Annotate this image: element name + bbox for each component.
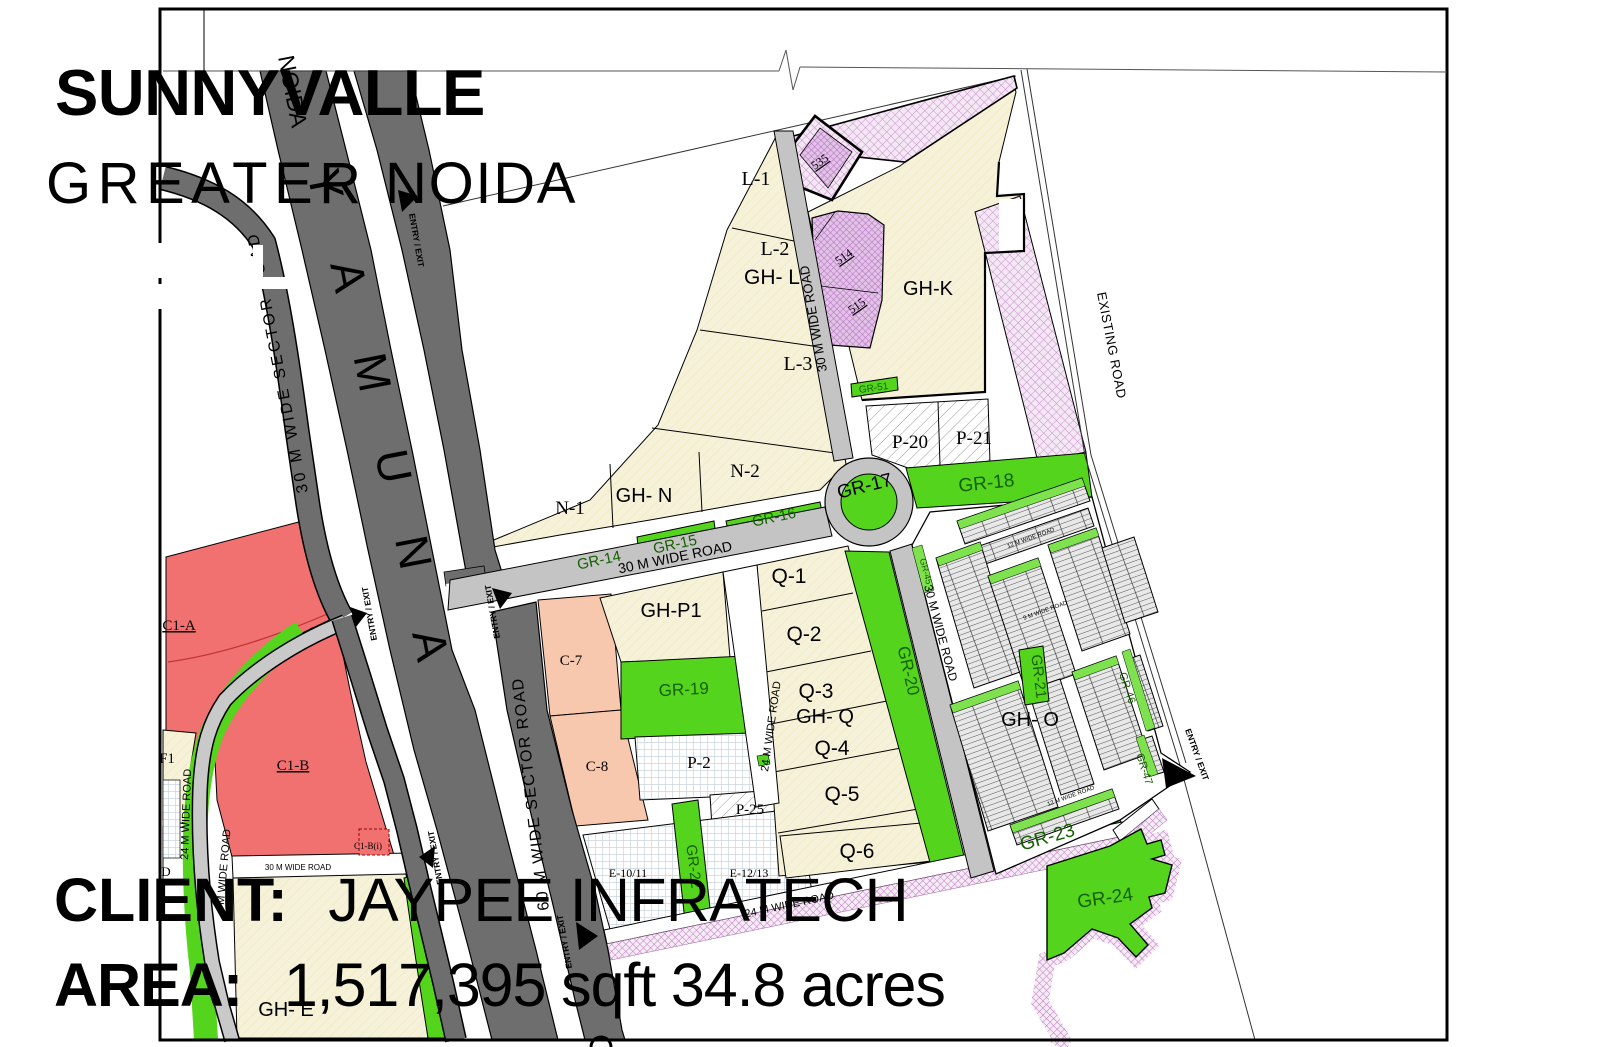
- svg-text:Q-1: Q-1: [771, 565, 806, 588]
- svg-text:GH- L: GH- L: [744, 266, 800, 289]
- svg-text:GREATERNOIDA: GREATERNOIDA: [46, 151, 577, 216]
- svg-text:L-2: L-2: [761, 238, 790, 260]
- svg-text:P-21: P-21: [956, 428, 992, 449]
- svg-text:C1-B: C1-B: [277, 758, 310, 774]
- svg-text:GH- Q: GH- Q: [796, 706, 854, 728]
- svg-text:GH- N: GH- N: [616, 485, 673, 507]
- svg-text:GH-K: GH-K: [903, 278, 954, 300]
- svg-text:P-2: P-2: [687, 753, 711, 772]
- svg-text:GH- O: GH- O: [1001, 709, 1059, 731]
- svg-text:Q-5: Q-5: [824, 783, 859, 806]
- svg-text:L-3: L-3: [784, 353, 813, 375]
- svg-text:C1-B(i): C1-B(i): [354, 841, 382, 851]
- svg-text:Q-2: Q-2: [786, 623, 821, 646]
- svg-text:N-1: N-1: [555, 498, 585, 519]
- svg-text:CLIENT: JAYPEE INFRATECH: CLIENT: JAYPEE INFRATECH: [54, 866, 908, 934]
- svg-text:P-25: P-25: [736, 802, 764, 818]
- svg-text:GR-19: GR-19: [658, 679, 709, 701]
- svg-text:L-1: L-1: [742, 168, 771, 190]
- svg-text:AREA: 1,517,395 sqft 34.8 acre: AREA: 1,517,395 sqft 34.8 acres: [54, 951, 945, 1019]
- svg-text:Q-4: Q-4: [814, 737, 849, 760]
- svg-text:Q-6: Q-6: [839, 840, 874, 863]
- svg-text:P-20: P-20: [892, 432, 928, 453]
- svg-text:C-7: C-7: [560, 653, 583, 669]
- svg-text:SUNNYVALLE: SUNNYVALLE: [55, 56, 485, 129]
- svg-text:Q-3: Q-3: [798, 680, 833, 703]
- svg-text:N-2: N-2: [730, 461, 760, 482]
- svg-text:C1-A: C1-A: [162, 618, 196, 634]
- svg-text:C-8: C-8: [586, 759, 609, 775]
- svg-text:GH-P1: GH-P1: [640, 600, 701, 622]
